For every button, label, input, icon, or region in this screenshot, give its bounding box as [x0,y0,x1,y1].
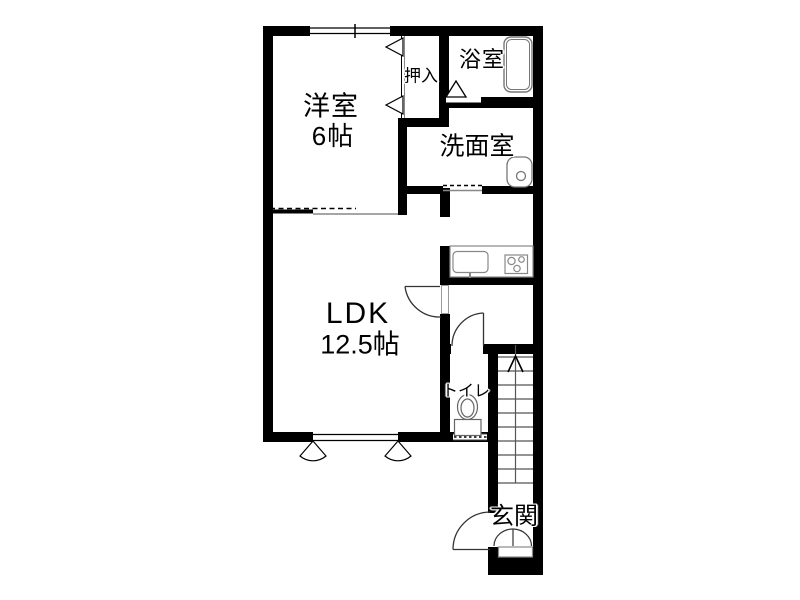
room-size-ldk: 12.5帖 [320,332,400,359]
shoe-cabinet-arc [513,529,532,546]
entry-door [453,512,490,550]
sliding-door-west-room [268,209,398,215]
wall-closet-bath-divider [439,26,449,127]
closet-door-triangle [386,96,403,114]
kitchen-counter [450,246,533,278]
bay-window-fan-right [385,441,411,461]
washbasin-drain [517,172,526,181]
floor-plan-drawing [0,0,800,600]
wall-ldk-bottom-left [263,432,313,442]
room-label-western-room: 洋室 [303,94,359,121]
closet-door-triangle [386,38,403,56]
toilet-door [452,313,484,346]
room-label-entrance: 玄関 [490,505,538,529]
wall-top-right [390,26,543,36]
shoe-cabinet-doors [494,529,532,546]
toilet-fixture [455,395,482,436]
room-label-ldk: LDK [326,299,390,329]
stove-burner [514,265,520,271]
room-label-toilet: トイレ [442,384,490,400]
closet-doors [386,36,405,118]
entry-door-arc [453,512,490,550]
wall-right [533,26,543,575]
bay-window-fan-left [300,441,326,461]
stove-burner [519,257,525,263]
wall-entrance-bottom [488,557,543,575]
toilet-door-arc [452,313,484,346]
bath-folding-door [446,81,481,103]
room-label-bathroom: 浴室 [459,49,505,71]
sliding-panel-bold [268,210,313,214]
kitchen-sink [453,252,488,273]
wall-left [263,26,273,442]
room-label-washroom: 洗面室 [439,135,514,160]
bathtub [504,37,532,92]
ldk-door [405,286,449,318]
bathtub-inner [507,40,530,90]
windows [310,24,398,441]
floor-plan: 洋室 6帖 押入 浴室 洗面室 LDK 12.5帖 トイレ 玄関 [0,0,800,600]
ldk-door-jamb [442,286,449,314]
ldk-door-arc [405,287,441,318]
wall-hall-bottom-left [440,344,451,354]
wall-west-room-right [398,118,407,215]
entrance-step [499,547,533,557]
room-label-closet: 押入 [404,68,438,85]
entrance-details [494,529,533,557]
wall-kitchen-bottom [440,277,543,285]
wall-washroom-bottom-left [398,186,443,194]
wall-ldk-right-a [440,188,450,217]
shoe-cabinet-arc [494,529,513,546]
washbasin [507,157,532,187]
bath-threshold [446,97,481,103]
room-size-western-room: 6帖 [312,123,354,149]
stove-burner [508,257,515,264]
toilet-bowl-inner [461,399,474,417]
wall-stairs-left-upper [488,344,498,513]
wall-ldk-bottom-mid [398,432,450,442]
toilet-tank [455,420,482,436]
staircase [498,345,533,483]
wall-ldk-right-c [440,314,450,442]
bay-window-fans [300,441,411,461]
